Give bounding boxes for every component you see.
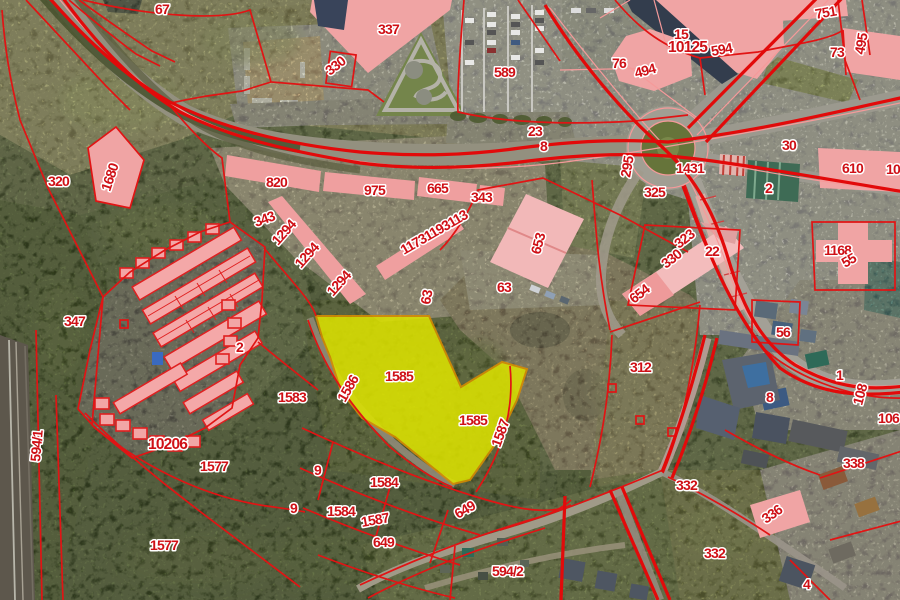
svg-text:589: 589	[494, 64, 516, 80]
svg-text:820: 820	[266, 174, 288, 190]
svg-text:9: 9	[290, 500, 298, 516]
svg-text:9: 9	[314, 462, 322, 478]
svg-text:1583: 1583	[278, 389, 307, 405]
svg-text:1: 1	[836, 367, 844, 383]
svg-text:10125: 10125	[668, 39, 708, 56]
svg-text:2: 2	[765, 180, 773, 196]
svg-text:338: 338	[843, 455, 865, 471]
svg-text:594/1: 594/1	[27, 429, 46, 462]
svg-text:8: 8	[766, 389, 774, 405]
svg-text:610: 610	[842, 160, 864, 176]
svg-text:1585: 1585	[385, 368, 414, 384]
svg-text:22: 22	[705, 243, 720, 259]
svg-text:1584: 1584	[370, 474, 399, 490]
svg-text:4: 4	[803, 576, 811, 592]
svg-text:8: 8	[540, 138, 548, 154]
svg-text:106: 106	[878, 410, 900, 426]
svg-text:343: 343	[471, 189, 493, 205]
svg-text:975: 975	[364, 182, 386, 198]
svg-text:325: 325	[644, 184, 666, 200]
svg-text:337: 337	[378, 21, 400, 37]
svg-text:649: 649	[373, 534, 395, 550]
svg-text:332: 332	[704, 545, 726, 561]
svg-text:1577: 1577	[200, 458, 229, 474]
svg-text:320: 320	[48, 173, 70, 189]
svg-text:67: 67	[155, 1, 170, 17]
svg-text:312: 312	[630, 359, 652, 375]
svg-text:347: 347	[64, 313, 86, 329]
svg-text:105: 105	[886, 161, 900, 177]
svg-text:665: 665	[427, 180, 449, 196]
svg-text:76: 76	[612, 55, 627, 71]
svg-text:30: 30	[782, 137, 797, 153]
svg-text:2: 2	[236, 339, 244, 355]
svg-text:1431: 1431	[676, 160, 705, 176]
svg-text:73: 73	[830, 44, 845, 60]
svg-text:594/2: 594/2	[492, 563, 524, 579]
svg-text:63: 63	[497, 279, 512, 295]
svg-text:1585: 1585	[459, 412, 488, 428]
svg-text:23: 23	[528, 123, 543, 139]
svg-text:10206: 10206	[148, 436, 188, 453]
svg-text:1584: 1584	[327, 503, 356, 519]
svg-text:332: 332	[676, 477, 698, 493]
svg-text:56: 56	[776, 324, 791, 340]
svg-text:1577: 1577	[150, 537, 179, 553]
